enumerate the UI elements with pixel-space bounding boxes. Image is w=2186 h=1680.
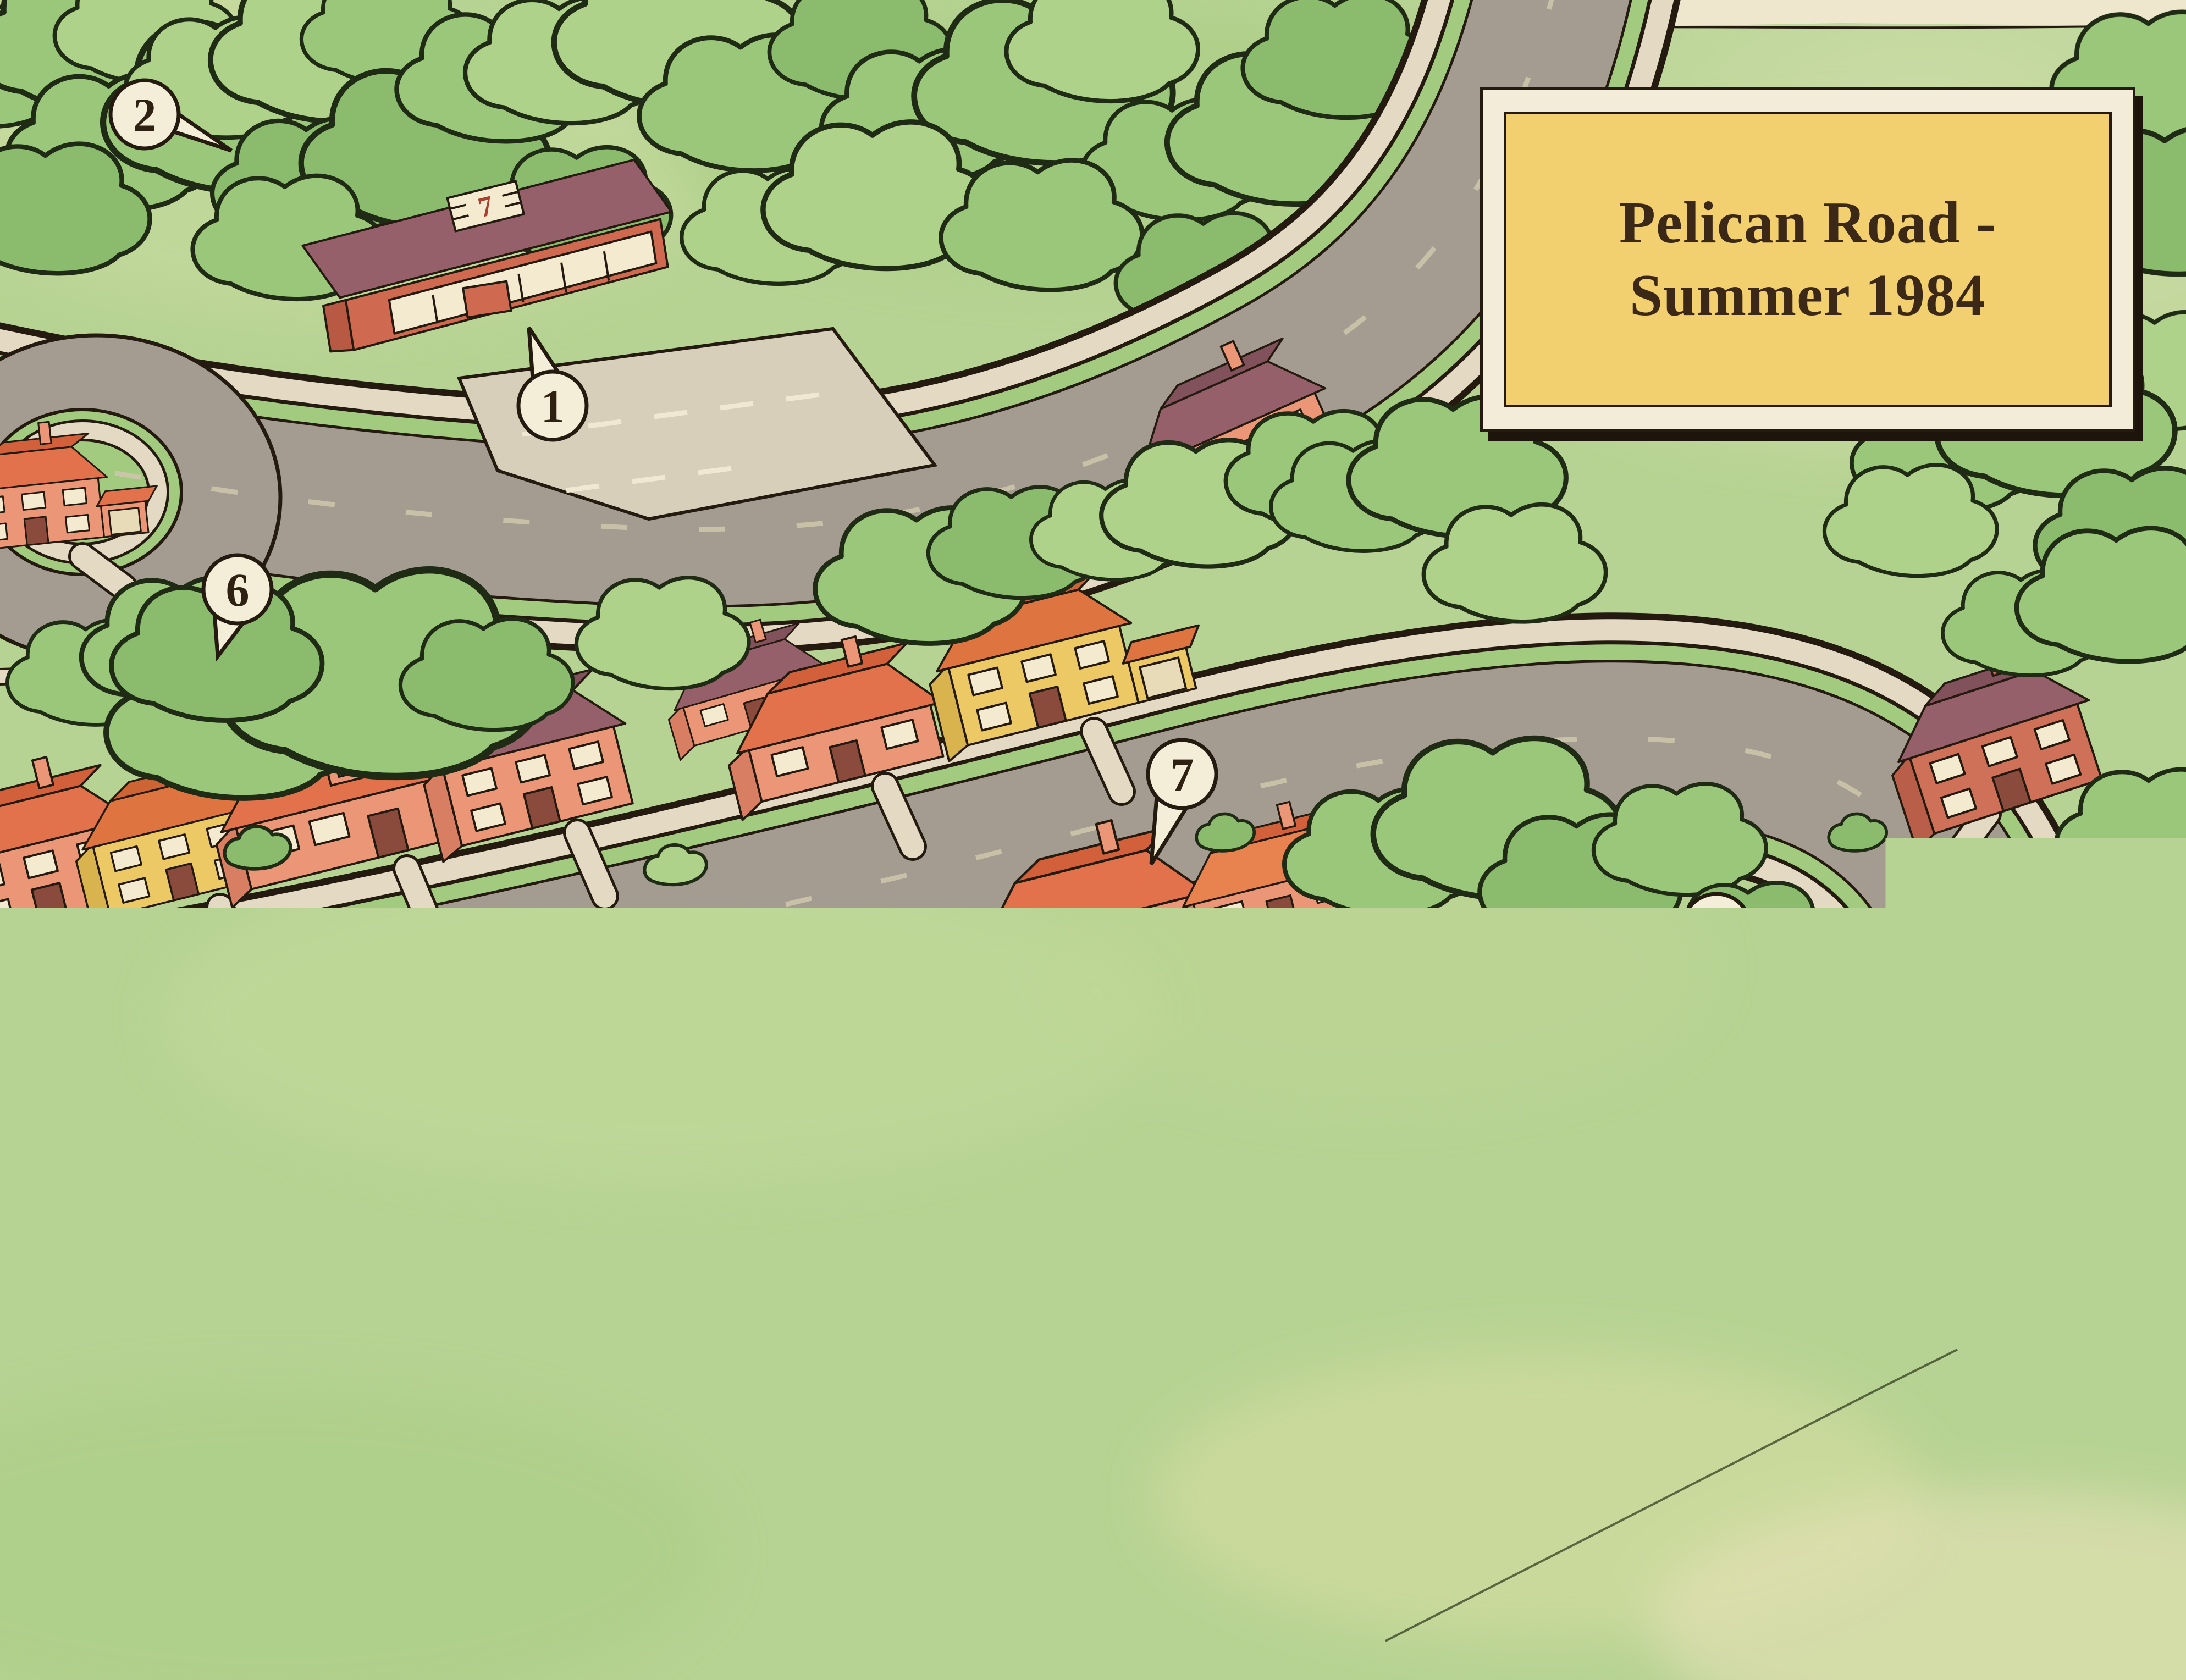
- svg-text:7: 7: [1171, 748, 1194, 801]
- legend-item-label: The Melvilles’ House: [1908, 1416, 2128, 1452]
- map-title-line1: Pelican Road -: [1619, 187, 1996, 259]
- map-page: 7: [0, 0, 2186, 1680]
- legend-separator: -: [1891, 1356, 1900, 1388]
- svg-text:5: 5: [1373, 972, 1396, 1025]
- legend-item: 4-Palmer’s House: [1865, 1384, 2116, 1421]
- svg-text:3: 3: [467, 1267, 490, 1320]
- legend-separator: -: [1890, 1291, 1898, 1323]
- legend-item-number: 2: [1864, 1323, 1883, 1356]
- map-legend-inner: 1-The 7-11 2-Ranko’s Tent 3-The Boarding…: [1839, 1266, 2127, 1574]
- legend-item-number: 1: [1863, 1291, 1883, 1324]
- legend-item-number: 9: [1868, 1550, 1887, 1583]
- legend-item: 6-The Treehouse: [1866, 1449, 2117, 1486]
- legend-item-label: Palmer’s House: [1908, 1385, 2075, 1420]
- legend-separator: -: [1893, 1453, 1901, 1485]
- legend-item-label: Mrs Wilson’s House: [1910, 1514, 2119, 1550]
- svg-text:2: 2: [133, 89, 157, 141]
- legend-separator: -: [1895, 1550, 1903, 1583]
- map-title-panel: Pelican Road - Summer 1984: [1480, 87, 2135, 432]
- legend-item: 7-Lila’s House: [1867, 1482, 2118, 1518]
- legend-item-number: 3: [1864, 1356, 1884, 1389]
- legend-item-number: 8: [1867, 1518, 1886, 1551]
- legend-item-number: 6: [1866, 1453, 1885, 1486]
- legend-item: 2-Ranko’s Tent: [1864, 1319, 2115, 1356]
- map-title-inner: Pelican Road - Summer 1984: [1504, 112, 2112, 407]
- map-title-line2: Summer 1984: [1630, 259, 1986, 332]
- legend-separator: -: [1894, 1485, 1902, 1518]
- map-marker-1: 1: [518, 328, 587, 440]
- svg-text:1: 1: [541, 380, 565, 433]
- legend-separator: -: [1892, 1388, 1900, 1421]
- legend-item-label: The Treehouse: [1909, 1450, 2065, 1485]
- legend-separator: -: [1894, 1518, 1902, 1550]
- legend-item-number: 7: [1867, 1485, 1886, 1518]
- legend-item-number: 4: [1865, 1388, 1884, 1421]
- svg-text:8: 8: [1595, 1157, 1619, 1210]
- legend-separator: -: [1892, 1421, 1901, 1453]
- map-legend-panel: 1-The 7-11 2-Ranko’s Tent 3-The Boarding…: [1821, 1246, 2144, 1594]
- legend-item: 9-Where The Body Was: [1868, 1546, 2119, 1583]
- svg-text:9: 9: [1247, 1273, 1271, 1325]
- legend-separator: -: [1891, 1323, 1899, 1356]
- legend-item-label: The Boarding House: [1907, 1352, 2123, 1388]
- legend-item-number: 5: [1865, 1421, 1885, 1454]
- svg-text:6: 6: [226, 563, 250, 616]
- svg-text:4: 4: [1705, 902, 1729, 955]
- legend-item: 1-The 7-11: [1863, 1287, 2115, 1324]
- legend-item: 3-The Boarding House: [1864, 1352, 2116, 1389]
- legend-item-label: The 7-11: [1906, 1289, 2000, 1323]
- legend-item: 5-The Melvilles’ House: [1865, 1417, 2117, 1454]
- legend-item-label: Lila’s House: [1909, 1483, 2039, 1517]
- legend-item: 8-Mrs Wilson’s House: [1867, 1514, 2118, 1551]
- legend-item-label: Where The Body Was: [1911, 1546, 2138, 1582]
- legend-item-label: Ranko’s Tent: [1907, 1320, 2044, 1355]
